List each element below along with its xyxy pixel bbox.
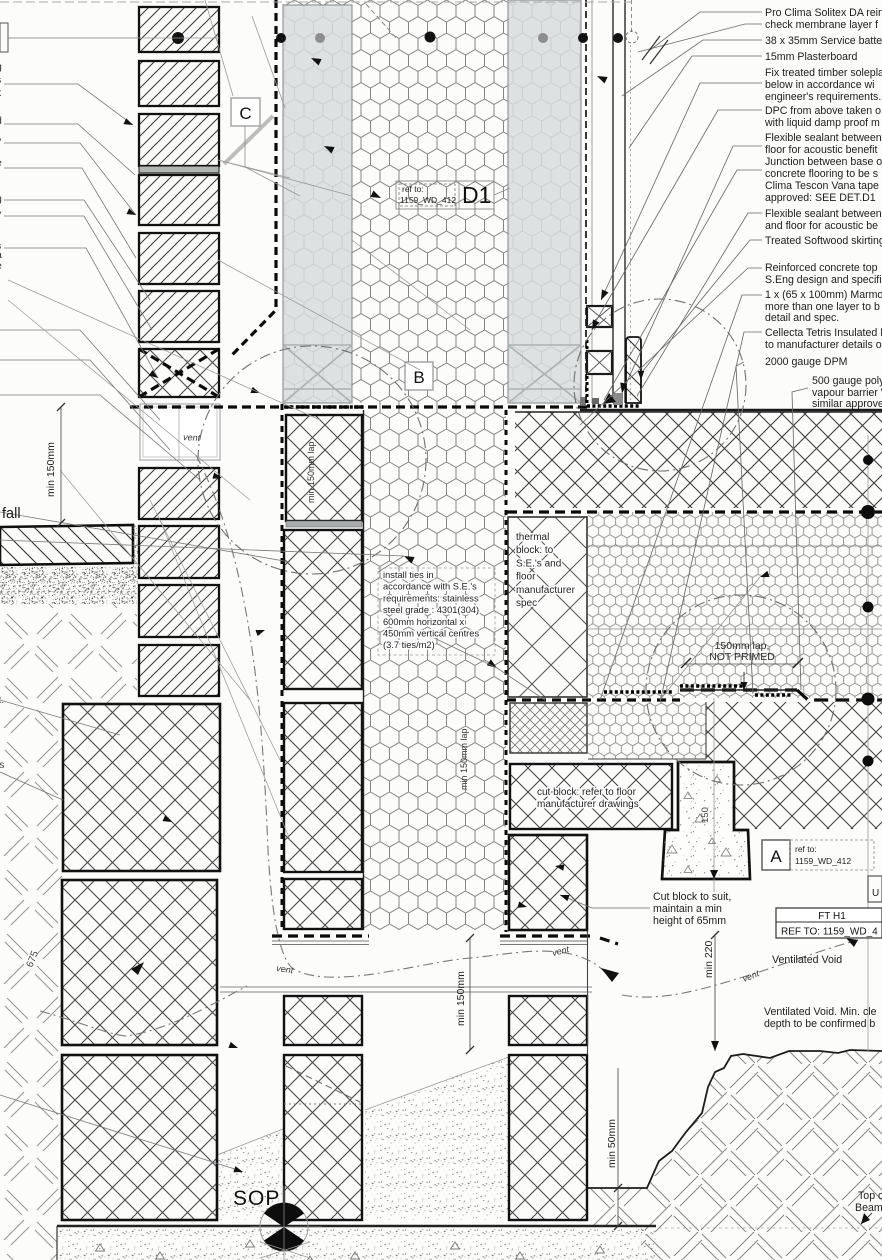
svg-text:manufacturer drawings: manufacturer drawings bbox=[537, 799, 639, 810]
svg-text:Cut block to suit,: Cut block to suit, bbox=[653, 891, 731, 903]
svg-text:vent: vent bbox=[183, 432, 201, 443]
svg-text:approved: SEE DET.D1: approved: SEE DET.D1 bbox=[765, 192, 876, 204]
svg-text:steel grade : 4301(304): steel grade : 4301(304) bbox=[383, 605, 479, 615]
svg-text:e: e bbox=[0, 260, 2, 272]
svg-text:d: d bbox=[0, 115, 2, 127]
svg-text:1159_WD_412: 1159_WD_412 bbox=[400, 195, 456, 205]
svg-text:REF TO: 1159_WD_4: REF TO: 1159_WD_4 bbox=[781, 927, 878, 938]
svg-text:min 150mm: min 150mm bbox=[455, 971, 467, 1026]
svg-text:s: s bbox=[0, 74, 1, 86]
svg-text:height of 65mm: height of 65mm bbox=[653, 915, 726, 927]
svg-text:Flexible sealant between: Flexible sealant between bbox=[765, 132, 882, 144]
svg-text:e: e bbox=[0, 157, 2, 169]
svg-text:A: A bbox=[770, 847, 782, 866]
svg-text:B: B bbox=[413, 368, 424, 387]
svg-text:Flexible sealant between: Flexible sealant between bbox=[765, 208, 882, 220]
svg-text:maintain a min: maintain a min bbox=[653, 903, 722, 915]
svg-text:g: g bbox=[0, 193, 2, 205]
svg-text:150: 150 bbox=[700, 807, 711, 823]
svg-text:to manufacturer details o: to manufacturer details o bbox=[765, 339, 882, 351]
svg-text:Clima Tescon Vana tape: Clima Tescon Vana tape bbox=[765, 180, 879, 192]
svg-text:500 gauge poly: 500 gauge poly bbox=[812, 375, 882, 387]
svg-text:Treated Softwood skirting: Treated Softwood skirting bbox=[765, 235, 882, 247]
svg-text:Fix treated timber solepla: Fix treated timber solepla bbox=[765, 67, 882, 79]
svg-text:Beam: Beam bbox=[855, 1202, 882, 1214]
svg-text:2000 gauge DPM: 2000 gauge DPM bbox=[765, 356, 847, 368]
svg-text:with liquid damp proof m: with liquid damp proof m bbox=[764, 117, 880, 129]
svg-text:C: C bbox=[239, 104, 251, 123]
svg-text:Ventilated Void. Min. cle: Ventilated Void. Min. cle bbox=[764, 1006, 877, 1018]
svg-text:and floor for acoustic be: and floor for acoustic be bbox=[765, 220, 878, 232]
svg-text:(3.7 ties/m2): (3.7 ties/m2) bbox=[383, 640, 435, 650]
svg-text:similar approve: similar approve bbox=[812, 398, 882, 410]
svg-text:450mm vertical centres: 450mm vertical centres bbox=[383, 629, 479, 639]
svg-text:15mm Plasterboard: 15mm Plasterboard bbox=[765, 51, 858, 63]
svg-text:Pro Clima Solitex DA reinf: Pro Clima Solitex DA reinf bbox=[765, 7, 882, 19]
svg-text:ref to:: ref to: bbox=[795, 844, 817, 854]
svg-text:requirements: stainless: requirements: stainless bbox=[383, 593, 479, 603]
svg-text:spec: spec bbox=[516, 598, 537, 609]
svg-text:check membrane layer f: check membrane layer f bbox=[765, 19, 878, 31]
svg-text:S.Eng design and specific: S.Eng design and specific bbox=[765, 274, 882, 286]
svg-text:38 x 35mm Service batte: 38 x 35mm Service batte bbox=[765, 35, 882, 47]
svg-text:Cellecta Tetris Insulated E: Cellecta Tetris Insulated E bbox=[765, 327, 882, 339]
svg-text:block: to: block: to bbox=[516, 545, 554, 556]
svg-text:manufacturer: manufacturer bbox=[516, 585, 576, 596]
svg-text:Top o: Top o bbox=[858, 1190, 882, 1202]
svg-text:Ventilated Void: Ventilated Void bbox=[772, 954, 842, 966]
svg-text:thermal: thermal bbox=[516, 532, 549, 543]
svg-text:install ties in: install ties in bbox=[383, 570, 434, 580]
svg-text:g: g bbox=[0, 61, 2, 73]
svg-text:U: U bbox=[872, 888, 879, 899]
svg-text:depth to be confirmed b: depth to be confirmed b bbox=[764, 1018, 875, 1030]
svg-text:min 150mm lap: min 150mm lap bbox=[459, 728, 469, 790]
svg-text:engineer's requirements.: engineer's requirements. bbox=[765, 91, 881, 103]
svg-text:accordance with S.E.'s: accordance with S.E.'s bbox=[383, 582, 477, 592]
svg-text:600mm horizontal x: 600mm horizontal x bbox=[383, 617, 464, 627]
svg-text:DPC from above taken o: DPC from above taken o bbox=[765, 105, 881, 117]
svg-text:cut block: refer to floor: cut block: refer to floor bbox=[537, 787, 637, 798]
svg-text:NOT PRIMED: NOT PRIMED bbox=[709, 651, 775, 663]
svg-text:Reinforced concrete top: Reinforced concrete top bbox=[765, 262, 878, 274]
svg-text:min 220: min 220 bbox=[703, 940, 715, 978]
svg-text:min 150mm lap: min 150mm lap bbox=[306, 441, 316, 503]
svg-text:Junction between base o: Junction between base o bbox=[765, 156, 882, 168]
svg-text:below in accordance wi: below in accordance wi bbox=[765, 79, 875, 91]
svg-text:nts: nts bbox=[0, 760, 4, 771]
svg-text:1 x (65 x 100mm) Marmox: 1 x (65 x 100mm) Marmox bbox=[765, 289, 882, 301]
svg-text:floor: floor bbox=[516, 572, 536, 583]
svg-text:FT H1: FT H1 bbox=[818, 911, 846, 922]
svg-text:fall: fall bbox=[2, 506, 21, 522]
svg-text:1159_WD_412: 1159_WD_412 bbox=[795, 856, 851, 866]
svg-text:ref to:: ref to: bbox=[402, 184, 424, 194]
svg-text:min 150mm: min 150mm bbox=[45, 442, 57, 497]
svg-text:D1: D1 bbox=[462, 182, 491, 208]
svg-text:floor for acoustic benefit: floor for acoustic benefit bbox=[765, 144, 878, 156]
svg-text:detail and spec.: detail and spec. bbox=[765, 312, 839, 324]
svg-text:S.E.'s and: S.E.'s and bbox=[516, 558, 561, 569]
svg-text:min 50mm: min 50mm bbox=[606, 1119, 618, 1168]
svg-text:concrete flooring to be s: concrete flooring to be s bbox=[765, 168, 878, 180]
